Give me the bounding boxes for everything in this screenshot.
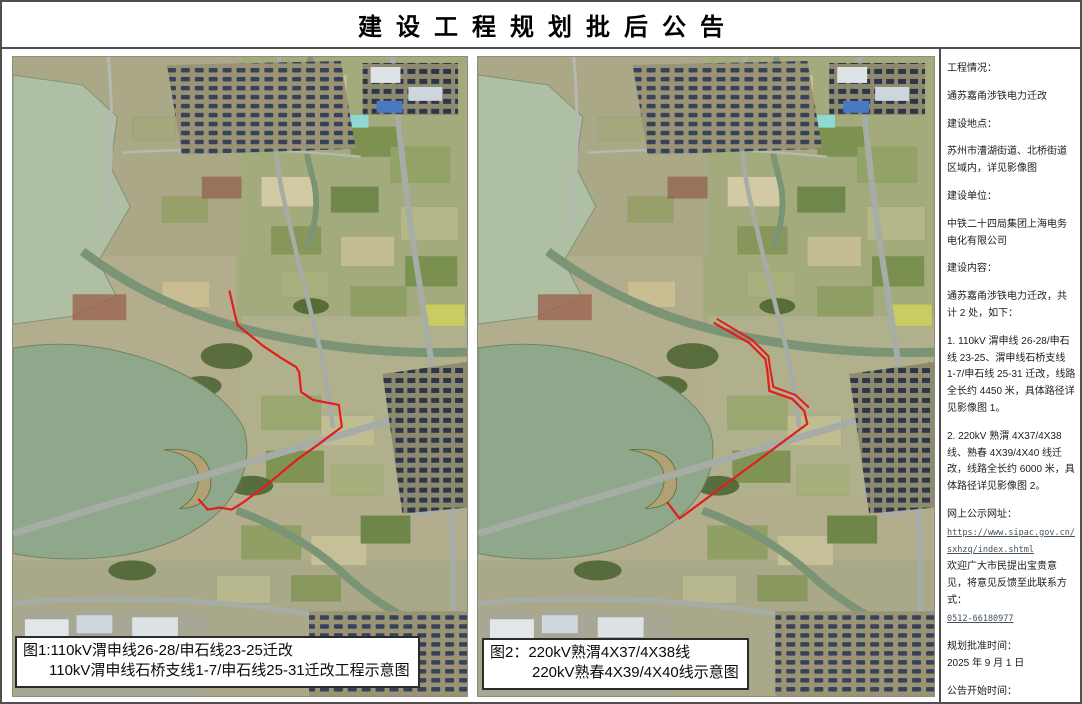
map-figure-2: 图2：220kV熟渭4X37/4X38线 220kV熟春4X39/4X40线示意… xyxy=(477,56,935,697)
value-content-item-2: 2. 220kV 熟渭 4X37/4X38 线、熟春 4X39/4X40 线迁改… xyxy=(947,429,1076,496)
label-content: 建设内容： xyxy=(947,261,1076,278)
caption-figure-1-line2: 110kV渭申线石桥支线1-7/申石线25-31迁改工程示意图 xyxy=(23,661,410,681)
label-approval-date: 规划批准时间： xyxy=(947,639,1076,656)
info-sidebar: 工程情况： 通苏嘉甬涉铁电力迁改 建设地点： 苏州市漕湖街道、北桥街道区域内，详… xyxy=(939,49,1080,702)
feedback-note: 欢迎广大市民提出宝贵意见，将意见反馈至此联系方式： xyxy=(947,559,1076,609)
satellite-image-2 xyxy=(478,57,934,696)
satellite-image-1 xyxy=(13,57,467,696)
map-figure-1: 图1:110kV渭申线26-28/申石线23-25迁改 110kV渭申线石桥支线… xyxy=(12,56,468,697)
value-location: 苏州市漕湖街道、北桥街道区域内，详见影像图 xyxy=(947,144,1076,178)
announcement-page: 建设工程规划批后公告 图1:110kV渭申线26-28/申石线23-25迁改 1… xyxy=(0,0,1082,704)
label-public-url: 网上公示网址： xyxy=(947,507,1076,524)
title-bar: 建设工程规划批后公告 xyxy=(2,2,1080,49)
label-builder: 建设单位： xyxy=(947,189,1076,206)
label-location: 建设地点： xyxy=(947,117,1076,134)
caption-figure-2: 图2：220kV熟渭4X37/4X38线 220kV熟春4X39/4X40线示意… xyxy=(482,638,749,691)
caption-figure-1-line1: 图1:110kV渭申线26-28/申石线23-25迁改 xyxy=(23,641,410,661)
value-content-item-1: 1. 110kV 渭申线 26-28/申石线 23-25、渭申线石桥支线 1-7… xyxy=(947,334,1076,418)
caption-figure-2-line1: 图2：220kV熟渭4X37/4X38线 xyxy=(490,643,739,663)
value-content-intro: 通苏嘉甬涉铁电力迁改，共计 2 处，如下： xyxy=(947,289,1076,323)
page-title: 建设工程规划批后公告 xyxy=(344,7,738,42)
label-announce-date: 公告开始时间： xyxy=(947,684,1076,701)
value-builder: 中铁二十四局集团上海电务电化有限公司 xyxy=(947,217,1076,251)
caption-figure-1: 图1:110kV渭申线26-28/申石线23-25迁改 110kV渭申线石桥支线… xyxy=(15,636,420,689)
caption-figure-2-line2: 220kV熟春4X39/4X40线示意图 xyxy=(490,663,739,683)
value-project-name: 通苏嘉甬涉铁电力迁改 xyxy=(947,89,1076,106)
contact-phone-link[interactable]: 0512-66180977 xyxy=(947,614,1014,624)
public-url-link[interactable]: https://www.sipac.gov.cn/sxhzq/index.sht… xyxy=(947,528,1075,555)
value-approval-date: 2025 年 9 月 1 日 xyxy=(947,656,1076,673)
label-project-status: 工程情况： xyxy=(947,61,1076,78)
